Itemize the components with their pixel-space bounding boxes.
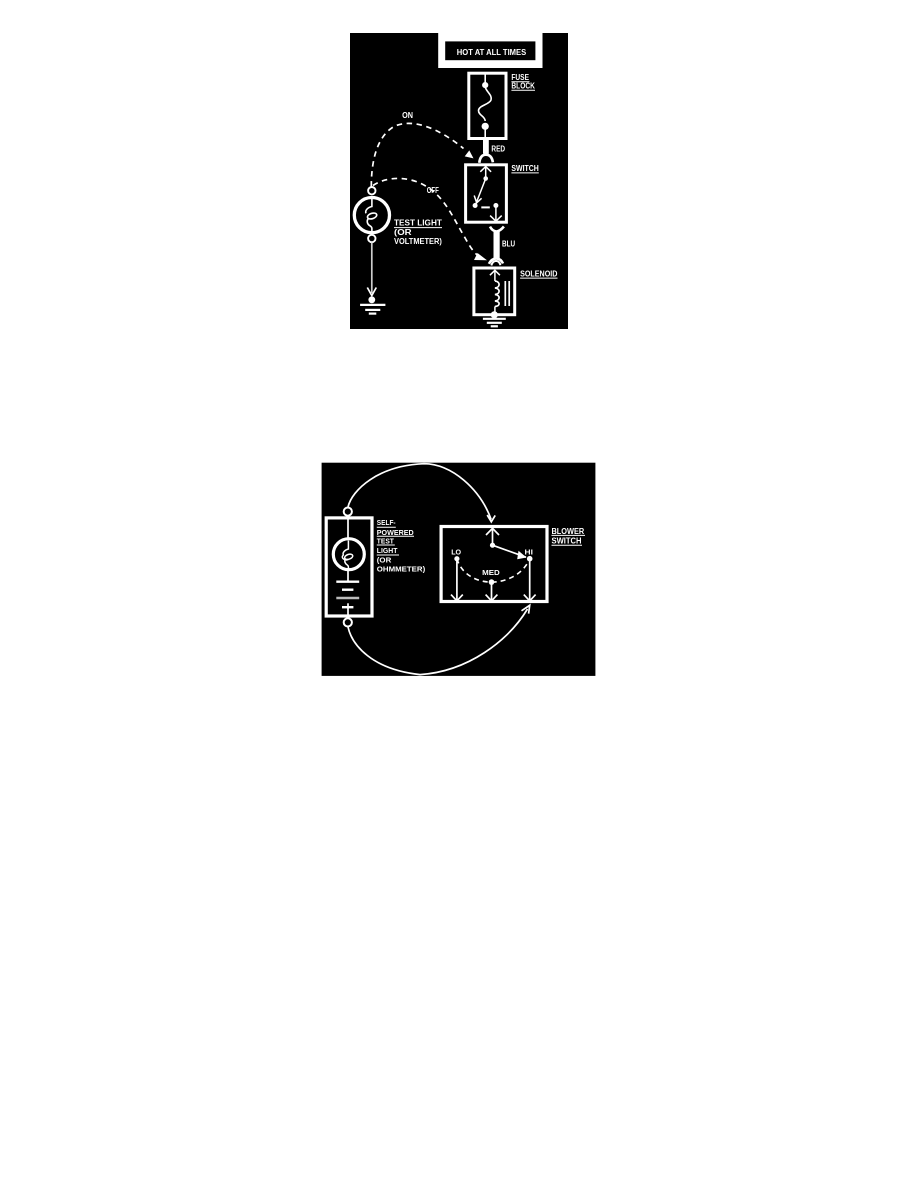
svg-text:RED: RED: [491, 144, 505, 153]
svg-text:BLOCK: BLOCK: [511, 82, 535, 91]
svg-text:ON: ON: [402, 111, 413, 120]
svg-text:LIGHT: LIGHT: [377, 548, 398, 555]
svg-text:HI: HI: [525, 548, 533, 557]
svg-text:MED: MED: [482, 568, 500, 577]
svg-text:BLOWER: BLOWER: [552, 527, 585, 536]
svg-text:SWITCH: SWITCH: [511, 164, 539, 173]
svg-text:LO: LO: [451, 548, 461, 557]
svg-text:SELF-: SELF-: [377, 520, 396, 527]
svg-text:OHMMETER): OHMMETER): [377, 566, 425, 573]
svg-text:BLU: BLU: [502, 239, 515, 248]
svg-text:TEST LIGHT: TEST LIGHT: [394, 219, 442, 228]
svg-text:SOLENOID: SOLENOID: [520, 270, 557, 279]
svg-text:(OR: (OR: [394, 228, 412, 237]
svg-text:VOLTMETER): VOLTMETER): [394, 237, 442, 246]
svg-text:SWITCH: SWITCH: [552, 537, 582, 546]
svg-text:HOT AT ALL TIMES: HOT AT ALL TIMES: [457, 48, 527, 57]
svg-text:OFF: OFF: [427, 186, 439, 195]
svg-text:(OR: (OR: [377, 557, 392, 564]
svg-text:TEST: TEST: [377, 538, 395, 545]
